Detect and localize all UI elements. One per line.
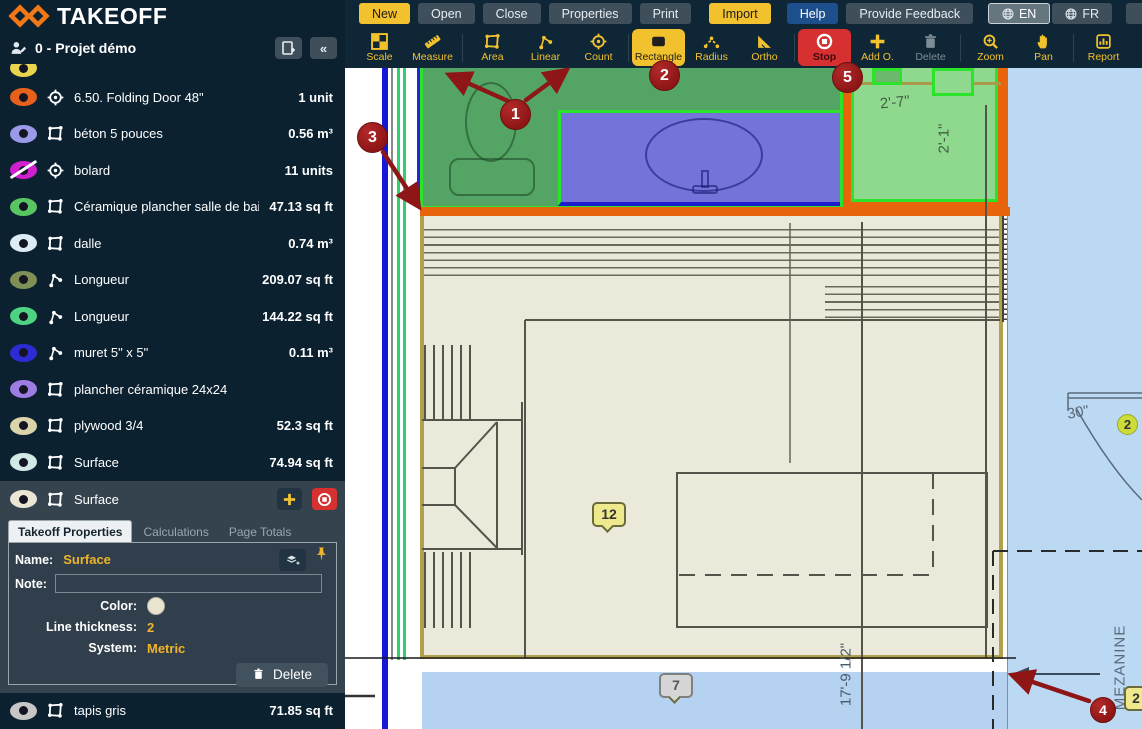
plan-tag-12[interactable]: 12 <box>592 502 626 527</box>
ortho-icon <box>756 33 773 50</box>
selected-item-block: Surface Takeoff PropertiesCalculationsPa… <box>0 481 345 693</box>
takeoff-item-surface[interactable]: Surface74.94 sq ft <box>0 444 345 481</box>
add-icon <box>869 33 886 50</box>
tool-ortho[interactable]: Ortho <box>738 29 791 66</box>
area-type-icon <box>47 417 64 434</box>
visibility-eye-icon[interactable] <box>10 453 37 471</box>
plan-canvas[interactable]: 2'-7" 2'-1" <box>345 68 1142 729</box>
area-type-icon <box>47 381 64 398</box>
globe-icon <box>1002 8 1014 20</box>
tool-area[interactable]: Area <box>466 29 519 66</box>
takeoff-item-bolard[interactable]: bolard11 units <box>0 152 345 189</box>
takeoff-item-tapis-gris[interactable]: tapis gris 71.85 sq ft <box>0 693 345 729</box>
report-icon <box>1095 33 1112 50</box>
area-type-icon <box>47 491 64 508</box>
system-row: System: Metric <box>15 638 328 659</box>
item-value: 0.74 m³ <box>288 236 333 251</box>
takeoff-item-muret-5-x-5[interactable]: muret 5" x 5"0.11 m³ <box>0 335 345 372</box>
tool-scale[interactable]: Scale <box>353 29 406 66</box>
tool-label: Delete <box>915 51 945 63</box>
sidebar: TAKEOFF 0 - Projet démo « 6.50. Folding … <box>0 0 345 729</box>
line-thickness-label: Line thickness: <box>15 620 137 634</box>
linear-type-icon <box>47 308 64 325</box>
delete-icon <box>922 33 939 50</box>
toolbar-separator <box>794 34 795 62</box>
tab-takeoff-properties[interactable]: Takeoff Properties <box>8 520 132 542</box>
item-label: bolard <box>74 163 275 178</box>
takeoff-item-c-ramique-plancher-salle-de-bain[interactable]: Céramique plancher salle de bain47.13 sq… <box>0 189 345 226</box>
tool-measure[interactable]: Measure <box>406 29 459 66</box>
doc-add-icon <box>282 41 295 55</box>
zoom-icon <box>982 33 999 50</box>
dimension-text: 2'-7" <box>879 92 910 112</box>
name-value[interactable]: Surface <box>63 552 111 567</box>
item-label: tapis gris <box>74 703 259 718</box>
topbar-provide-feedback-button[interactable]: Provide Feedback <box>846 3 973 24</box>
topbar-import-button[interactable]: Import <box>709 3 770 24</box>
item-label: dalle <box>74 236 278 251</box>
visibility-eye-icon[interactable] <box>10 64 37 77</box>
new-page-button[interactable] <box>275 37 302 59</box>
item-value: 47.13 sq ft <box>269 199 333 214</box>
project-header: 0 - Projet démo « <box>0 32 345 64</box>
count-icon <box>590 33 607 50</box>
dimension-arrow <box>1012 667 1100 681</box>
visibility-eye-icon[interactable] <box>10 271 37 289</box>
takeoff-item-plywood-3-4[interactable]: plywood 3/452.3 sq ft <box>0 408 345 445</box>
count-type-icon <box>47 162 64 179</box>
topbar-help-button[interactable]: Help <box>787 3 839 24</box>
item-label: plancher céramique 24x24 <box>74 382 323 397</box>
delete-row: Delete <box>15 663 328 687</box>
takeoff-item-dalle[interactable]: dalle0.74 m³ <box>0 225 345 262</box>
tool-rectangle[interactable]: Rectangle <box>632 29 685 66</box>
visibility-eye-icon[interactable] <box>10 125 37 143</box>
line-thickness-row: Line thickness: 2 <box>15 617 328 638</box>
stair-winder <box>422 402 523 555</box>
tool-label: Linear <box>531 51 560 63</box>
visibility-eye-icon[interactable] <box>10 344 37 362</box>
collapse-icon: « <box>320 41 327 56</box>
takeoff-properties-panel: Name: Surface Note: Color: <box>8 542 337 685</box>
project-title: 0 - Projet démo <box>35 40 267 56</box>
tool-label: Pan <box>1034 51 1053 63</box>
project-edit-icon <box>10 40 27 57</box>
topbar-print-button[interactable]: Print <box>640 3 692 24</box>
system-value[interactable]: Metric <box>147 641 185 656</box>
visibility-eye-icon[interactable] <box>10 234 37 252</box>
scale-icon <box>371 33 388 50</box>
dimension-text: 17'-9 1/2" <box>838 620 855 729</box>
toolbar-separator <box>1073 34 1074 62</box>
item-value: 144.22 sq ft <box>262 309 333 324</box>
plan-linework <box>345 68 1142 729</box>
item-label: Longueur <box>74 309 252 324</box>
toolbar-separator <box>628 34 629 62</box>
linear-type-icon <box>47 271 64 288</box>
visibility-eye-icon[interactable] <box>10 88 37 106</box>
plan-tag-7[interactable]: 7 <box>659 673 693 698</box>
area-type-icon <box>47 235 64 252</box>
item-label: plywood 3/4 <box>74 418 267 433</box>
name-row: Name: Surface <box>15 548 328 572</box>
lang-en-button[interactable]: EN <box>988 3 1050 24</box>
dimension-text: 2'-1" <box>936 109 953 169</box>
takeoff-item-6-50-folding-door-48[interactable]: 6.50. Folding Door 48"1 unit <box>0 79 345 116</box>
tool-pan[interactable]: Pan <box>1017 29 1070 66</box>
tool-zoom[interactable]: Zoom <box>964 29 1017 66</box>
rectangle-icon <box>650 33 667 50</box>
logo-row: TAKEOFF <box>0 0 345 32</box>
area-type-icon <box>47 702 64 719</box>
takeoff-item-longueur[interactable]: Longueur144.22 sq ft <box>0 298 345 335</box>
globe-icon <box>1065 8 1077 20</box>
tab-calculations[interactable]: Calculations <box>134 521 217 542</box>
tool-report[interactable]: Report <box>1077 29 1130 66</box>
tool-label: Count <box>584 51 612 63</box>
item-label: Surface <box>74 455 259 470</box>
takeoff-items-list: 6.50. Folding Door 48"1 unitbéton 5 pouc… <box>0 64 345 481</box>
stop-icon <box>816 33 833 50</box>
tool-label: Ortho <box>751 51 777 63</box>
item-label: muret 5" x 5" <box>74 345 279 360</box>
collapse-sidebar-button[interactable]: « <box>310 37 337 59</box>
note-row: Note: <box>15 572 328 596</box>
item-value: 209.07 sq ft <box>262 272 333 287</box>
tool-delete: Delete <box>904 29 957 66</box>
tool-label: Radius <box>695 51 728 63</box>
plan-badge-2[interactable]: 2 <box>1117 414 1138 435</box>
tool-label: Rectangle <box>635 51 682 63</box>
item-label: Longueur <box>74 272 252 287</box>
toolbar-separator <box>462 34 463 62</box>
plan-tag-2[interactable]: 2 <box>1124 686 1142 711</box>
takeoff-app: TAKEOFF 0 - Projet démo « 6.50. Folding … <box>0 0 1142 729</box>
item-value: 52.3 sq ft <box>277 418 333 433</box>
note-label: Note: <box>15 577 47 591</box>
visibility-eye-icon[interactable] <box>10 490 37 508</box>
selected-item-label: Surface <box>74 492 267 507</box>
color-label: Color: <box>15 599 137 613</box>
visibility-eye-icon[interactable] <box>10 417 37 435</box>
area-type-icon <box>47 198 64 215</box>
item-value: 11 units <box>285 163 333 178</box>
item-value: 0.11 m³ <box>289 345 333 360</box>
tab-page-totals[interactable]: Page Totals <box>220 521 301 542</box>
item-value: 0.56 m³ <box>288 126 333 141</box>
system-label: System: <box>15 641 137 655</box>
tool-label: Zoom <box>977 51 1004 63</box>
linear-type-icon <box>47 344 64 361</box>
trash-icon <box>252 667 265 681</box>
table-outline <box>677 473 987 627</box>
item-value: 1 unit <box>298 90 333 105</box>
topbar-close-button[interactable]: Close <box>483 3 541 24</box>
pan-icon <box>1035 33 1052 50</box>
color-swatch[interactable] <box>147 597 165 615</box>
tool-count[interactable]: Count <box>572 29 625 66</box>
logo-text: TAKEOFF <box>57 3 167 30</box>
area-type-icon <box>47 125 64 142</box>
layers-add-icon <box>285 553 300 567</box>
tool-label: Measure <box>412 51 453 63</box>
tool-label: Scale <box>366 51 392 63</box>
visibility-eye-icon[interactable] <box>10 198 37 216</box>
item-value: 74.94 sq ft <box>269 455 333 470</box>
visibility-eye-icon[interactable] <box>10 161 37 179</box>
file-buttons: NewOpenClosePropertiesPrintImportHelpPro… <box>351 3 973 24</box>
delete-takeoff-button[interactable]: Delete <box>236 663 328 687</box>
tool-add-o[interactable]: Add O. <box>851 29 904 66</box>
top-menu-bar: NewOpenClosePropertiesPrintImportHelpPro… <box>345 0 1142 27</box>
visibility-eye-icon[interactable] <box>10 702 37 720</box>
line-thickness-value[interactable]: 2 <box>147 620 154 635</box>
count-type-icon <box>47 89 64 106</box>
language-switch: ENFR <box>986 3 1112 24</box>
takeoff-item-b-ton-5-pouces[interactable]: béton 5 pouces0.56 m³ <box>0 116 345 153</box>
selected-takeoff-row[interactable]: Surface <box>0 481 345 518</box>
tool-label: Area <box>481 51 503 63</box>
note-input[interactable] <box>55 574 322 593</box>
toolbar-separator <box>960 34 961 62</box>
item-label: béton 5 pouces <box>74 126 278 141</box>
pin-icon[interactable] <box>313 546 328 562</box>
takeoff-item-partial[interactable] <box>0 64 345 79</box>
tool-label: Stop <box>813 51 836 63</box>
color-row: Color: <box>15 596 328 617</box>
layers-add-button[interactable] <box>279 549 306 571</box>
topbar-open-button[interactable]: Open <box>418 3 475 24</box>
takeoff-item-plancher-c-ramique-24x24[interactable]: plancher céramique 24x24 <box>0 371 345 408</box>
lang-fr-button[interactable]: FR <box>1052 3 1112 24</box>
measure-icon <box>424 33 441 50</box>
topbar-properties-button[interactable]: Properties <box>549 3 632 24</box>
area-icon <box>484 33 501 50</box>
tool-radius[interactable]: Radius <box>685 29 738 66</box>
stop-takeoff-button[interactable] <box>312 488 337 510</box>
stair-treads <box>425 345 470 419</box>
linear-icon <box>537 33 554 50</box>
tool-linear[interactable]: Linear <box>519 29 572 66</box>
item-label: Céramique plancher salle de bain <box>74 199 259 214</box>
partial-button[interactable] <box>1126 3 1142 24</box>
delete-label: Delete <box>273 667 312 682</box>
add-takeoff-button[interactable] <box>277 488 302 510</box>
item-value: 71.85 sq ft <box>269 703 333 718</box>
visibility-eye-icon[interactable] <box>10 307 37 325</box>
radius-icon <box>703 33 720 50</box>
topbar-new-button[interactable]: New <box>359 3 410 24</box>
tool-stop[interactable]: Stop <box>798 29 851 66</box>
stair-treads <box>425 552 470 628</box>
name-label: Name: <box>15 553 53 567</box>
takeoff-logo-icon <box>8 4 50 28</box>
item-label: 6.50. Folding Door 48" <box>74 90 288 105</box>
tool-label: Report <box>1088 51 1120 63</box>
area-type-icon <box>47 454 64 471</box>
visibility-eye-icon[interactable] <box>10 380 37 398</box>
properties-tabs: Takeoff PropertiesCalculationsPage Total… <box>0 518 345 542</box>
tools-toolbar: ScaleMeasureAreaLinearCountRectangleRadi… <box>345 27 1142 68</box>
takeoff-item-longueur[interactable]: Longueur209.07 sq ft <box>0 262 345 299</box>
tool-label: Add O. <box>861 51 894 63</box>
